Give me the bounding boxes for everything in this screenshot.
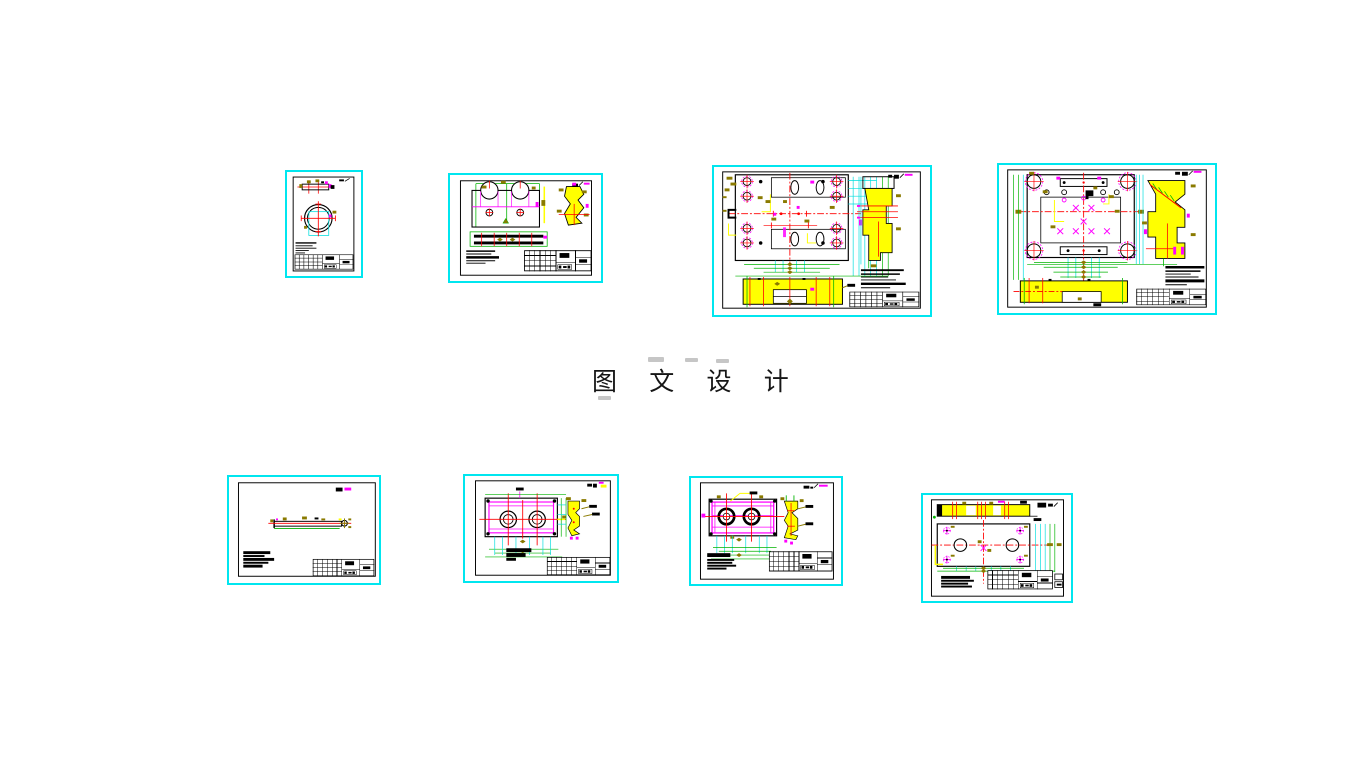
- sheet-4-thumbnail[interactable]: [997, 163, 1217, 315]
- design-board: 图 文 设 计: [0, 0, 1345, 763]
- sheet-8-graphic: [923, 495, 1071, 601]
- sheet-7-graphic: [691, 478, 841, 584]
- sheet-5-thumbnail[interactable]: [227, 475, 381, 585]
- sheet-6-thumbnail[interactable]: [463, 474, 619, 583]
- watermark-smudge: [716, 359, 729, 363]
- sheet-6-graphic: [465, 476, 617, 581]
- sheet-8-thumbnail[interactable]: [921, 493, 1073, 603]
- watermark-smudge: [685, 358, 698, 362]
- watermark-smudge: [648, 357, 664, 362]
- sheet-7-thumbnail[interactable]: [689, 476, 843, 586]
- sheet-2-thumbnail[interactable]: [448, 173, 603, 283]
- sheet-5-graphic: [229, 477, 379, 583]
- page-title: 图 文 设 计: [592, 362, 762, 402]
- sheet-1-graphic: [287, 172, 361, 276]
- watermark-smudge: [598, 396, 611, 400]
- sheet-3-thumbnail[interactable]: [712, 165, 932, 317]
- sheet-2-graphic: [450, 175, 601, 281]
- sheet-1-thumbnail[interactable]: [285, 170, 363, 278]
- sheet-4-graphic: [999, 165, 1215, 313]
- sheet-3-graphic: [714, 167, 930, 315]
